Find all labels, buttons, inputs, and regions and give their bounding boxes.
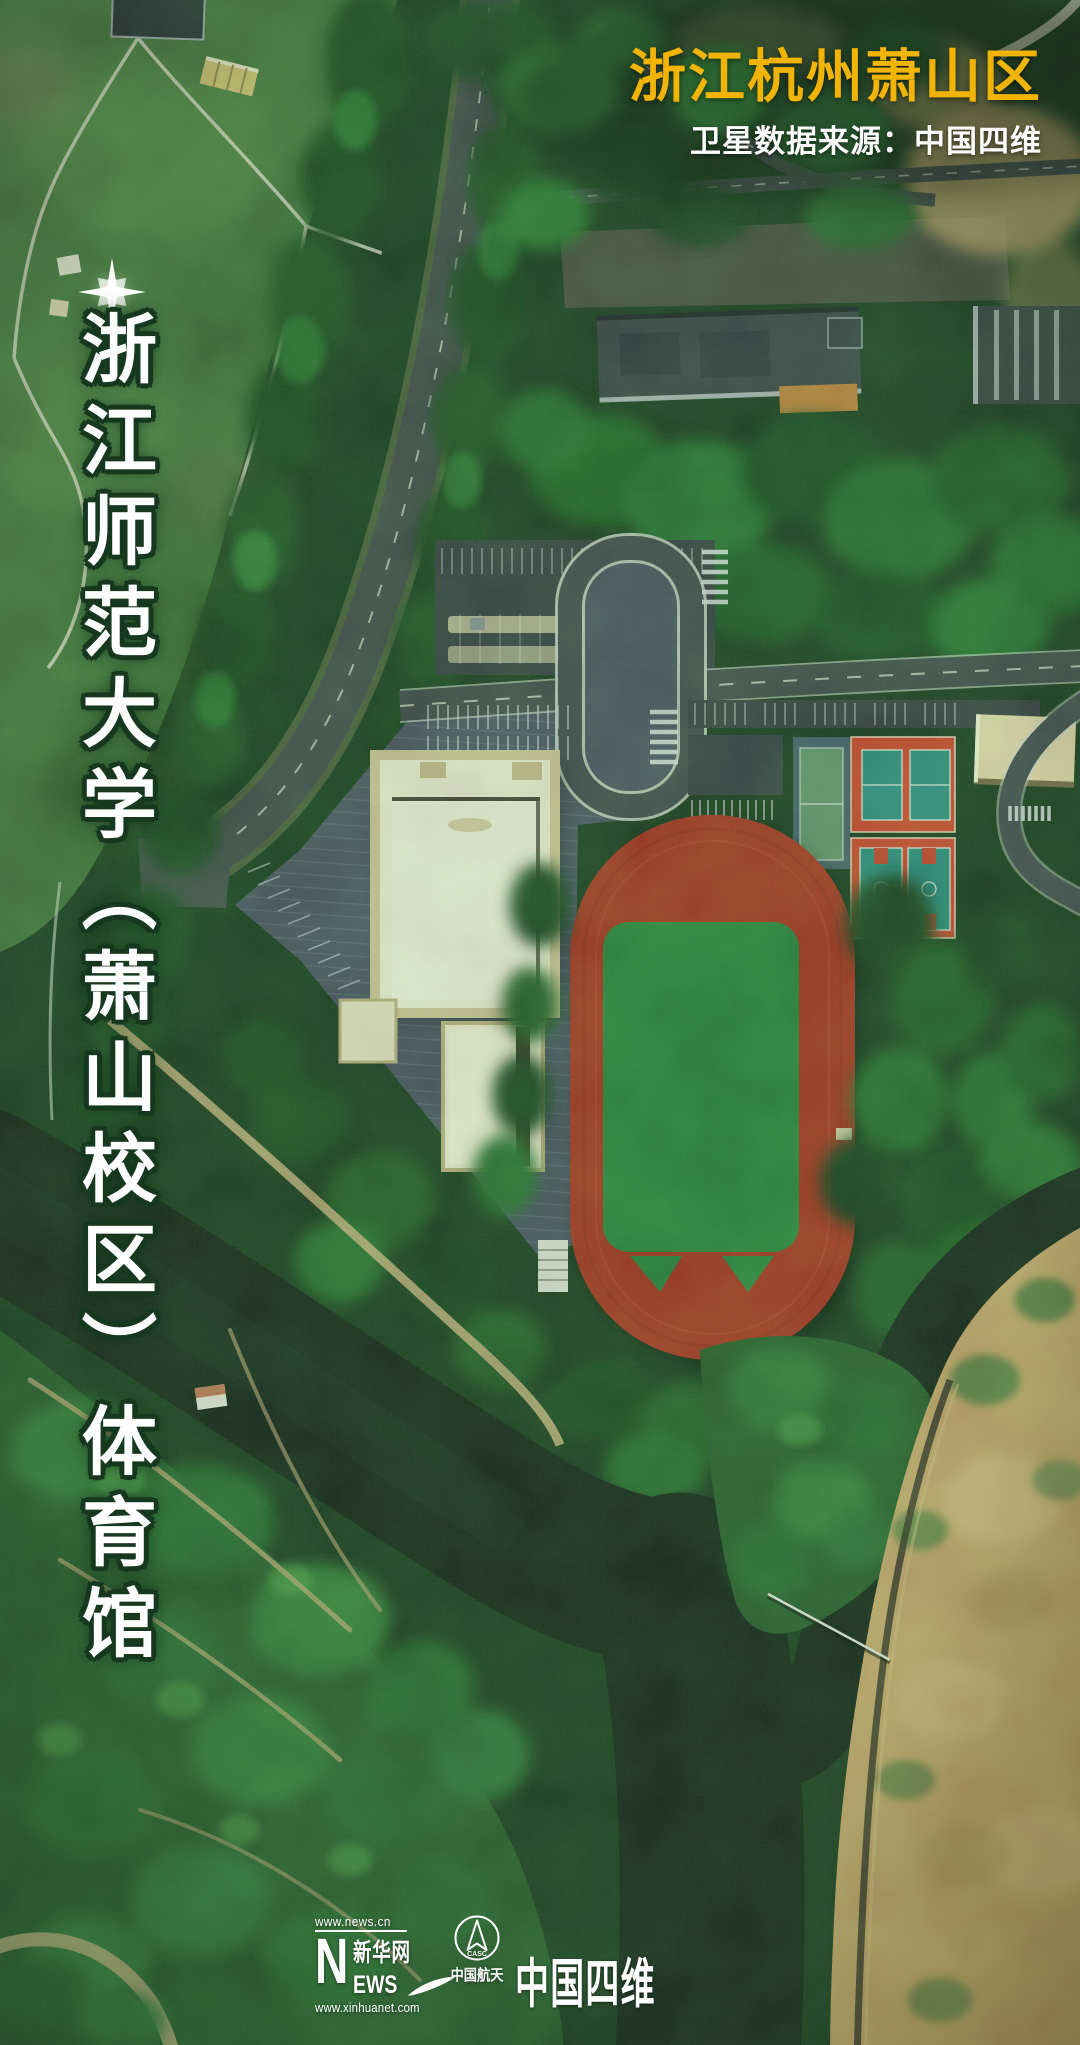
casc-emblem-icon: CASC — [453, 1914, 501, 1962]
vertical-title: 浙江师范大学（萧山校区）体育馆 — [74, 310, 149, 1730]
footer-logos: www.news.cn N 新华网 EWS www.xinhuanet.com … — [315, 1914, 735, 2018]
data-source-credit: 卫星数据来源：中国四维 — [629, 116, 1042, 161]
vignette — [0, 0, 1080, 2045]
casc-name: 中国航天 — [451, 1964, 504, 1985]
casc-abbr: CASC — [467, 1951, 487, 1958]
xinhuanet-chinese: 新华网 — [353, 1933, 431, 1969]
siwei-wordmark: 中国四维 — [515, 1942, 656, 2018]
casc-logo: CASC 中国航天 — [445, 1914, 509, 1985]
xinhuanet-n-glyph: N — [315, 1933, 348, 2000]
region-title: 浙江杭州萧山区 — [629, 48, 1042, 108]
xinhuanet-ews: EWS — [353, 1971, 397, 2000]
satellite-image — [0, 0, 1080, 2045]
header: 浙江杭州萧山区 卫星数据来源：中国四维 — [629, 48, 1042, 161]
xinhuanet-logo: www.news.cn N 新华网 EWS www.xinhuanet.com — [315, 1914, 433, 2015]
poster: 浙江杭州萧山区 卫星数据来源：中国四维 浙江师范大学（萧山校区）体育馆 www.… — [0, 0, 1080, 2045]
xinhuanet-url: www.xinhuanet.com — [315, 2000, 419, 2015]
